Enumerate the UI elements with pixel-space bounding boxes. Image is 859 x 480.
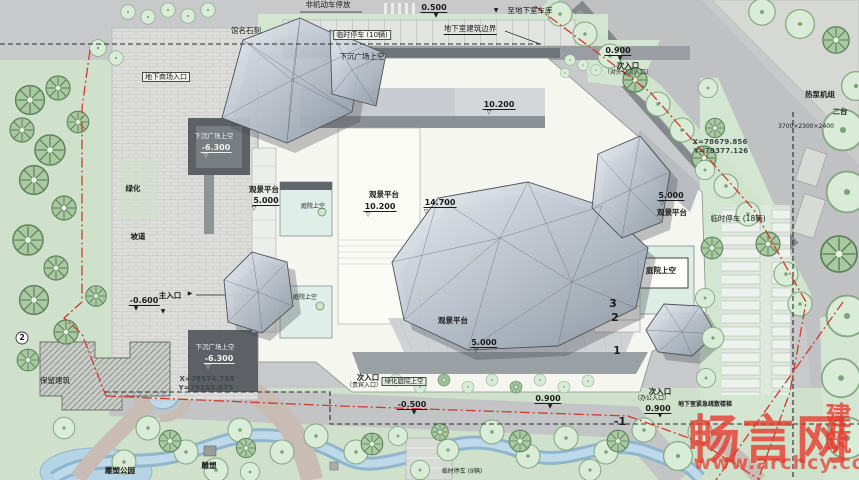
watermark-url: www.archcy.com: [694, 452, 859, 474]
grid-bubble: [16, 332, 28, 344]
site-plan: 非机动车停放馆名石刻0.500▼▼至地下室车库地下室建筑边界临时停车 (10辆)…: [0, 0, 859, 480]
watermark-suffix: 建筑: [818, 402, 855, 454]
